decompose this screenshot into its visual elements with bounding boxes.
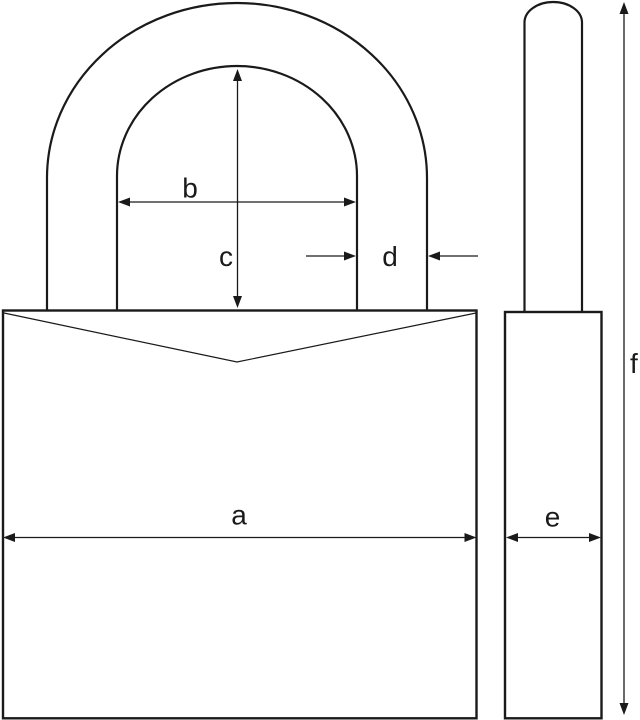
- svg-text:c: c: [219, 241, 233, 272]
- svg-text:d: d: [382, 241, 398, 272]
- svg-text:f: f: [630, 348, 638, 379]
- svg-text:a: a: [231, 500, 247, 531]
- svg-text:b: b: [182, 173, 198, 204]
- svg-text:e: e: [545, 502, 561, 533]
